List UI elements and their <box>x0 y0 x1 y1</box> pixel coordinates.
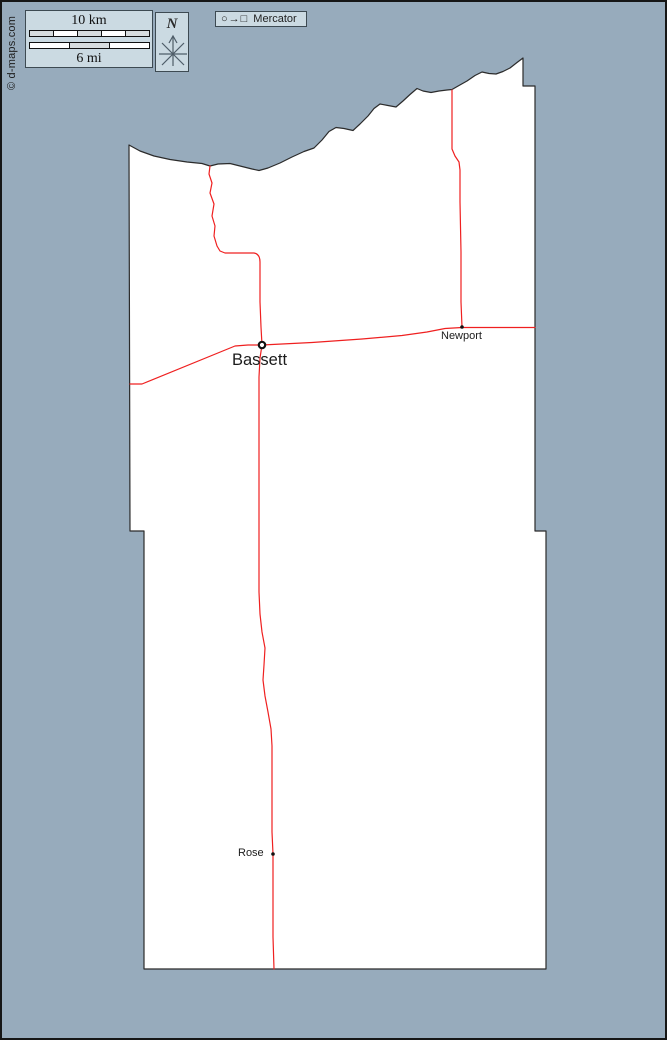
scale-bar-mi <box>29 42 150 49</box>
scale-segment <box>30 31 54 36</box>
map-canvas: Bassett Newport Rose 10 km 6 mi N ○→□ <box>0 0 667 1040</box>
county-outline <box>129 58 546 969</box>
town-label-newport: Newport <box>441 331 482 342</box>
scale-segment <box>54 31 78 36</box>
copyright-watermark: © d-maps.com <box>6 16 18 90</box>
scale-bar-km <box>29 30 150 37</box>
town-marker-rose <box>271 852 275 856</box>
scale-segment <box>110 43 149 48</box>
town-label-bassett: Bassett <box>232 352 287 369</box>
town-label-rose: Rose <box>238 848 264 859</box>
scale-bar-panel: 10 km 6 mi <box>25 10 153 68</box>
scale-segment <box>126 31 149 36</box>
compass-rose-icon <box>156 32 190 70</box>
projection-icon: ○→□ <box>221 13 248 25</box>
town-marker-newport <box>460 325 464 329</box>
scale-segment <box>70 43 110 48</box>
scale-mi-label: 6 mi <box>26 52 152 66</box>
scale-segment <box>102 31 126 36</box>
north-arrow-panel: N <box>155 12 189 72</box>
scale-segment <box>30 43 70 48</box>
county-map-svg <box>2 2 667 1040</box>
north-label: N <box>156 17 188 32</box>
scale-segment <box>78 31 102 36</box>
projection-label: Mercator <box>253 13 296 25</box>
projection-panel: ○→□ Mercator <box>215 11 307 27</box>
town-marker-bassett <box>259 342 265 348</box>
scale-km-label: 10 km <box>26 14 152 28</box>
